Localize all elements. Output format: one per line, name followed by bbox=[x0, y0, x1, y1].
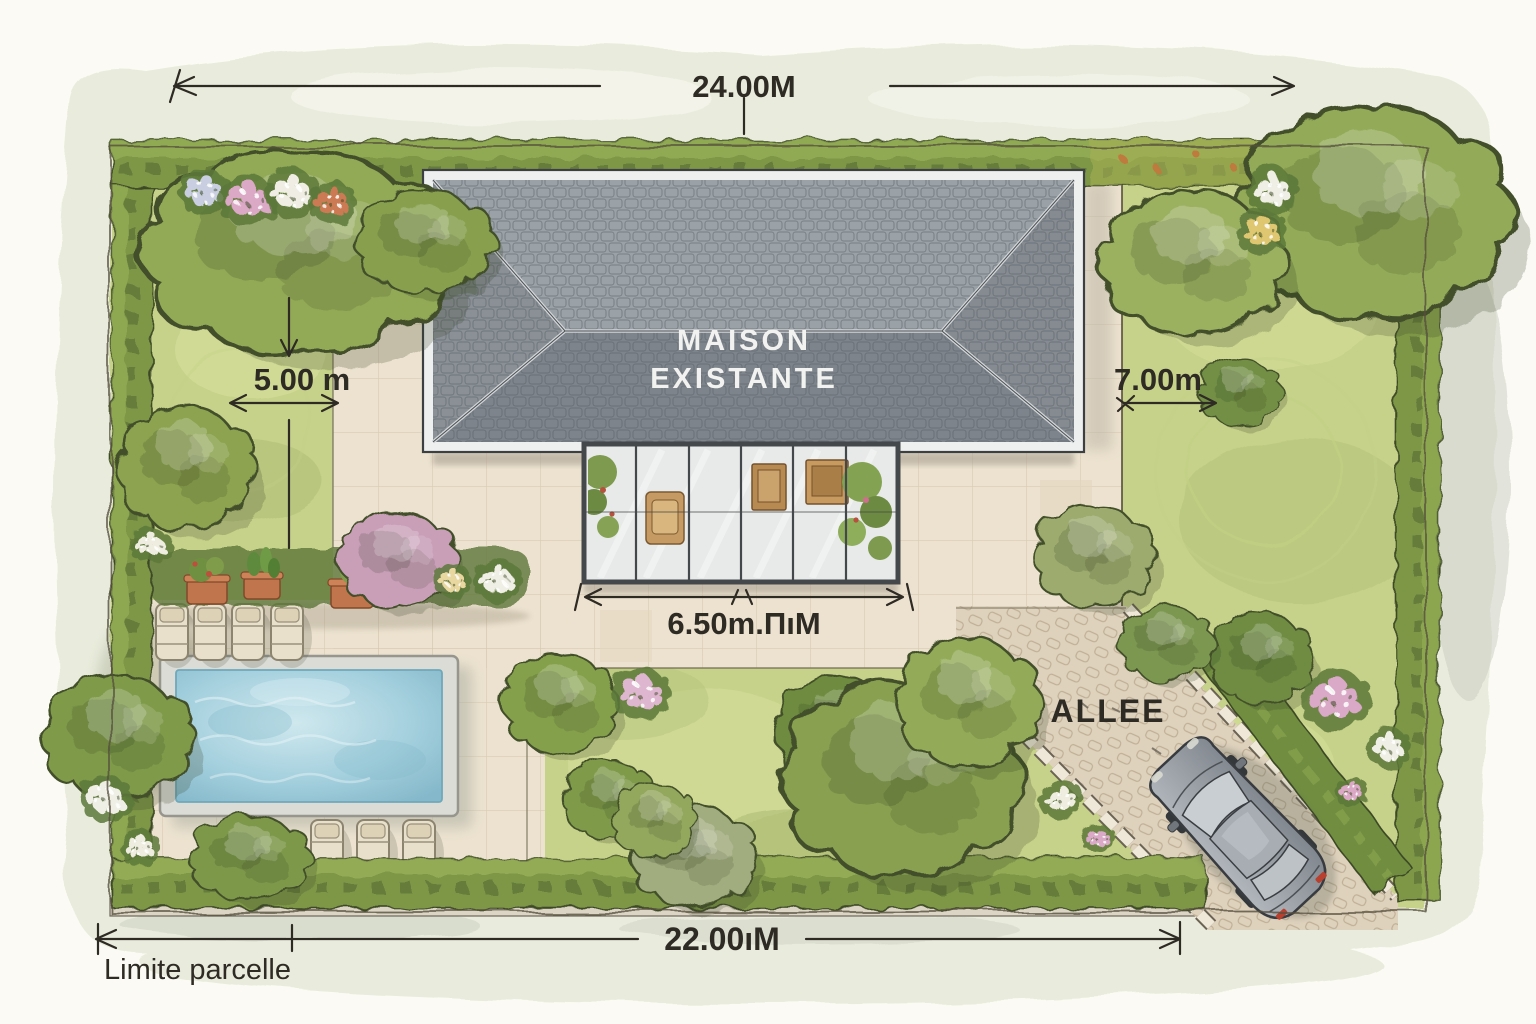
boundary-label: Limite parcelle bbox=[104, 954, 291, 986]
veranda bbox=[581, 444, 898, 593]
watercolor-site-plan: MAISON EXISTANTE bbox=[0, 0, 1536, 1024]
dimension-veranda-label: 6.50m.ΠıM bbox=[667, 606, 820, 641]
dimension-right: 7.00m bbox=[1114, 362, 1216, 411]
dimension-left-label: 5.00 m bbox=[254, 362, 351, 397]
dimension-right-label: 7.00m bbox=[1114, 362, 1202, 397]
house-label-line1: MAISON bbox=[677, 325, 811, 357]
dimension-bottom-label: 22.00ıM bbox=[664, 921, 780, 957]
dimension-top-label: 24.00M bbox=[692, 69, 795, 104]
driveway-label: ALLEE bbox=[1051, 693, 1166, 729]
house-roof: MAISON EXISTANTE bbox=[433, 180, 1074, 442]
house-label-line2: EXISTANTE bbox=[650, 363, 838, 395]
site-plan-canvas: MAISON EXISTANTE bbox=[0, 0, 1536, 1024]
